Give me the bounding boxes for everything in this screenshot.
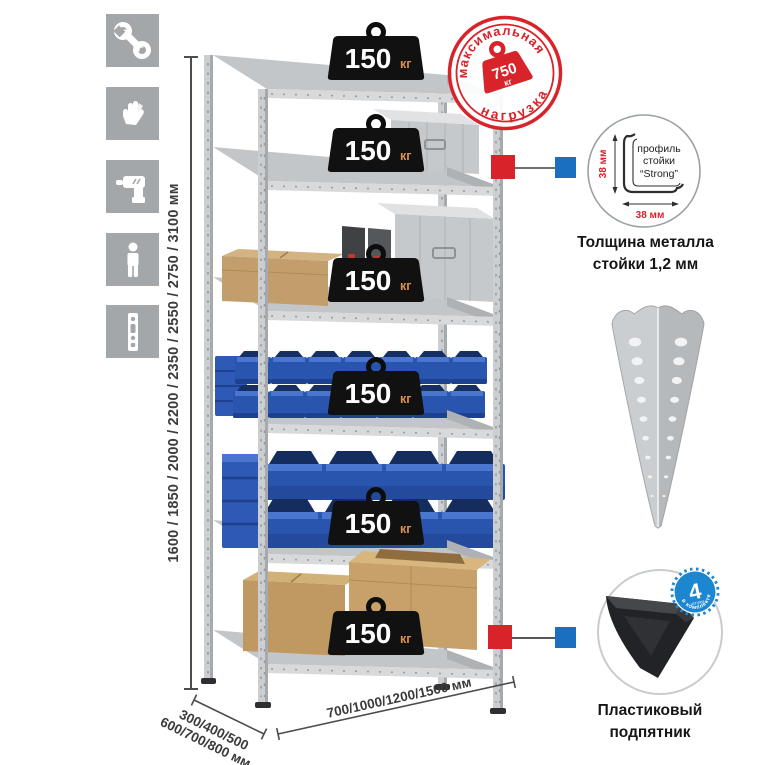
load-value: 150 <box>345 378 392 409</box>
load-unit: кг <box>400 57 411 71</box>
callout-blue-square-top <box>555 157 576 178</box>
bottom-dimensions: 300/400/500 600/700/800 мм 700/1000/1200… <box>158 668 553 763</box>
width-dimension-arrow <box>277 676 516 740</box>
profile-caption-line2: стойки 1,2 мм <box>553 254 738 276</box>
load-unit: кг <box>400 149 411 163</box>
callout-red-square-bottom <box>488 625 512 649</box>
blue-crate-large <box>222 454 262 548</box>
upright-post-icon <box>113 310 153 354</box>
load-unit: кг <box>400 632 411 646</box>
height-dimension-label: 1600 / 1850 / 2000 / 2200 / 2350 / 2550 … <box>166 183 182 562</box>
callout-blue-square-bottom <box>555 627 576 648</box>
person-icon-tile <box>106 233 159 286</box>
drill-icon-tile <box>106 160 159 213</box>
load-value: 150 <box>345 135 392 166</box>
upright-post-icon-tile <box>106 305 159 358</box>
profile-label-line1: профиль <box>637 143 681 155</box>
profile-label-line2: стойки <box>643 155 675 167</box>
load-unit: кг <box>400 522 411 536</box>
load-value: 150 <box>345 265 392 296</box>
load-value: 150 <box>345 618 392 649</box>
profile-label: профиль стойки “Strong” <box>637 143 681 180</box>
profile-caption: Толщина металла стойки 1,2 мм <box>553 232 738 277</box>
max-load-stamp: максимальная нагрузка 750 кг <box>440 8 570 138</box>
callout-red-square-top <box>491 155 515 179</box>
plastic-foot-detail: 4 штуки в комплекте <box>578 552 743 712</box>
profile-label-line3: “Strong” <box>640 168 678 180</box>
width-dimension-text: 700/1000/1200/1500 мм <box>325 674 472 720</box>
product-infographic: 1600 / 1850 / 2000 / 2200 / 2350 / 2550 … <box>0 0 765 765</box>
cardboard-box-small <box>222 249 344 306</box>
profile-detail-circle: 38 мм 38 мм профиль стойки “Strong” <box>585 112 703 230</box>
person-icon <box>113 240 153 280</box>
foot-caption-line1: Пластиковый <box>560 700 740 722</box>
wrench-icon-tile <box>106 14 159 67</box>
angle-post-illustration <box>588 296 728 541</box>
foot-caption-line2: подпятник <box>560 722 740 744</box>
foot-caption: Пластиковый подпятник <box>560 700 740 745</box>
load-unit: кг <box>400 279 411 293</box>
load-unit: кг <box>400 392 411 406</box>
load-value: 150 <box>345 43 392 74</box>
width-dimension-label: 700/1000/1200/1500 мм <box>325 674 472 720</box>
wrench-icon <box>113 21 153 61</box>
load-badge-1: 150 кг <box>328 25 424 81</box>
profile-caption-line1: Толщина металла <box>553 232 738 254</box>
profile-dim-horizontal-label: 38 мм <box>636 210 665 221</box>
load-value: 150 <box>345 508 392 539</box>
callout-line-top <box>515 167 555 169</box>
profile-dim-vertical-label: 38 мм <box>598 150 609 179</box>
gloves-icon <box>113 94 153 134</box>
height-dimension-line <box>190 57 192 690</box>
depth-dimension-label: 300/400/500 600/700/800 мм <box>158 701 260 765</box>
gloves-icon-tile <box>106 87 159 140</box>
callout-line-bottom <box>512 637 555 639</box>
drill-icon <box>112 166 154 208</box>
